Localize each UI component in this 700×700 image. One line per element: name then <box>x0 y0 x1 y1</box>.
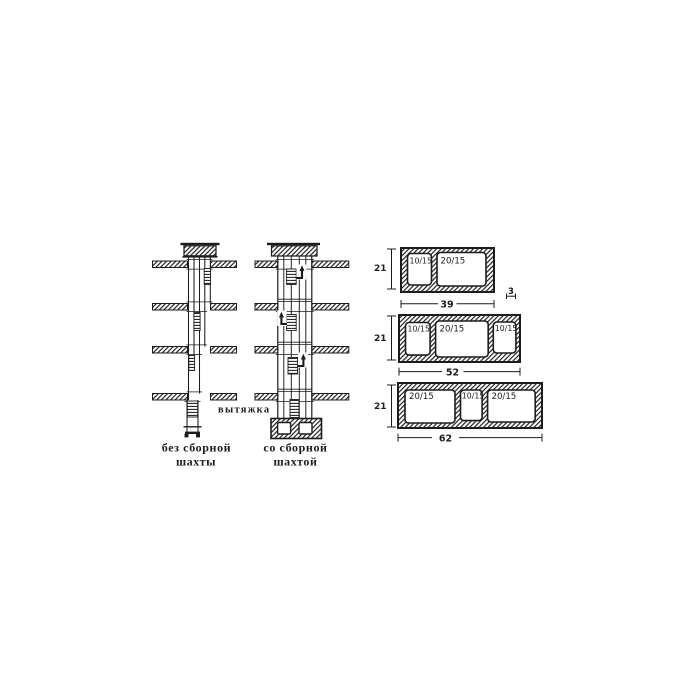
height-dim-label: 21 <box>374 264 387 274</box>
block-section-39: 10/15 20/15 <box>401 248 494 292</box>
right-shaft-caption-line2: шахтой <box>273 455 317 469</box>
right-shaft-caption-line1: со сборной <box>263 441 327 455</box>
left-shaft-exhaust-outlet <box>184 427 202 438</box>
height-dim-label: 21 <box>374 334 387 344</box>
left-shaft-caption-line2: шахты <box>176 455 216 469</box>
scanned-diagram-page: 10/15 20/15 10/15 20/15 10/15 20/15 10/1… <box>0 0 700 700</box>
right-shaft-roof-hatch <box>272 246 318 256</box>
opening-size-label: 10/15 <box>410 257 433 266</box>
left-shaft-roof-hatch <box>184 246 216 256</box>
opening-size-label: 10/15 <box>462 392 485 401</box>
wall-thickness-label: 3 <box>508 287 514 297</box>
block-cross-sections: 10/15 20/15 10/15 20/15 10/15 20/15 10/1… <box>374 248 542 444</box>
width-dim-label: 62 <box>439 433 452 444</box>
opening-size-label: 10/15 <box>408 325 431 334</box>
opening-size-label: 10/15 <box>495 324 518 333</box>
left-shaft-registers <box>187 269 210 418</box>
exhaust-label: вытяжка <box>218 405 270 416</box>
block-section-62: 20/15 10/15 20/15 <box>398 383 542 428</box>
ventilation-diagram: 10/15 20/15 10/15 20/15 10/15 20/15 10/1… <box>0 0 700 700</box>
right-shaft-floor-slabs <box>255 261 349 400</box>
right-shaft-roof-plate <box>267 243 320 245</box>
height-dim-label: 21 <box>374 402 387 412</box>
width-dim-label: 52 <box>446 367 459 378</box>
opening-size-label: 20/15 <box>492 392 517 402</box>
block-section-52: 10/15 20/15 10/15 <box>399 315 520 362</box>
left-shaft-roof-plate <box>181 243 220 245</box>
right-shaft-base-block <box>271 419 322 439</box>
opening-size-label: 20/15 <box>440 325 465 335</box>
right-shaft-registers <box>287 269 299 418</box>
width-dim-label: 39 <box>440 300 453 311</box>
left-shaft-caption-line1: без сборной <box>162 441 231 455</box>
opening-size-label: 20/15 <box>441 257 466 267</box>
opening-size-label: 20/15 <box>409 392 434 402</box>
